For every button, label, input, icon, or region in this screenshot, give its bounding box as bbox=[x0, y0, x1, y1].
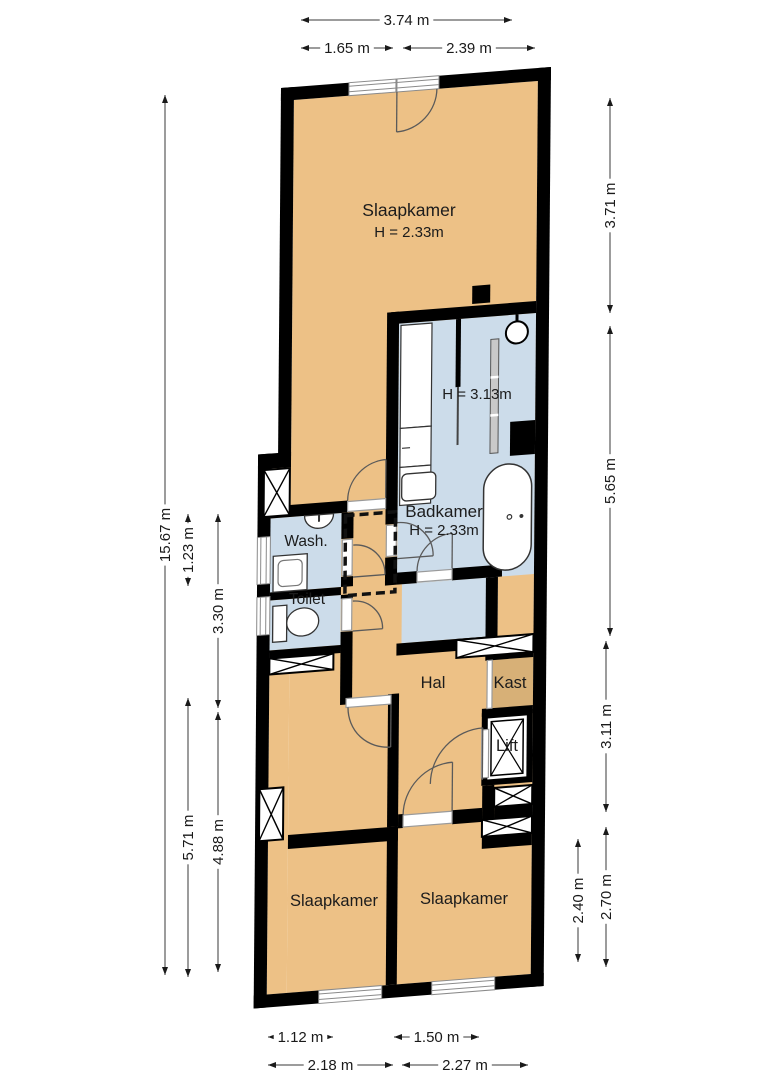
room-label-kast: Kast bbox=[493, 674, 526, 692]
dimension: 3.11 m bbox=[598, 641, 616, 812]
dimension: 1.23 m bbox=[180, 514, 198, 586]
dimension-label: 2.18 m bbox=[308, 1057, 354, 1074]
window-left-2 bbox=[257, 597, 270, 636]
dimension: 5.65 m bbox=[602, 326, 620, 636]
room-label-text: Badkamer bbox=[405, 502, 483, 521]
room-label-slaapkamer-right: Slaapkamer bbox=[420, 890, 509, 908]
shaft-box bbox=[264, 468, 290, 517]
room-height-label: H = 2.33m bbox=[409, 522, 479, 539]
dimension: 2.39 m bbox=[403, 40, 535, 58]
dimension: 3.71 m bbox=[602, 98, 620, 313]
dimension-label: 2.27 m bbox=[442, 1057, 488, 1074]
dimension-label: 2.70 m bbox=[598, 874, 615, 920]
room-label-hal: Hal bbox=[421, 674, 446, 692]
room-label-text: Slaapkamer bbox=[420, 890, 509, 908]
room-height-label: H = 2.33m bbox=[374, 224, 444, 241]
room-label-text: Slaapkamer bbox=[362, 200, 456, 220]
chimney-block bbox=[472, 285, 490, 304]
dimension: 5.71 m bbox=[180, 698, 198, 977]
room-label-text: Hal bbox=[421, 674, 446, 692]
room-label-text: Toilet bbox=[289, 591, 326, 608]
room-label-toilet: Toilet bbox=[289, 591, 326, 608]
room-badkamer-sub-fill bbox=[401, 577, 497, 643]
dimension: 2.18 m bbox=[268, 1057, 393, 1075]
dimension: 2.40 m bbox=[570, 839, 588, 962]
kast-door bbox=[487, 660, 492, 708]
room-label-slaapkamer-left: Slaapkamer bbox=[290, 892, 379, 910]
room-label-text: Slaapkamer bbox=[290, 892, 379, 910]
dimension-label: 5.71 m bbox=[180, 815, 197, 861]
door-threshold bbox=[348, 499, 386, 512]
floorplan-canvas: SlaapkamerH = 2.33mBadkamerH = 2.33mH = … bbox=[0, 0, 768, 1086]
dimension-label: 3.71 m bbox=[602, 183, 619, 229]
dimension: 1.50 m bbox=[394, 1029, 479, 1047]
shaft-box bbox=[494, 785, 532, 807]
room-label-lift: Lift bbox=[496, 737, 518, 755]
bathroom-sink bbox=[402, 472, 436, 502]
room-label-badkamer-shower-height: H = 3.13m bbox=[442, 386, 512, 403]
room-label-text: H = 3.13m bbox=[442, 386, 512, 403]
dimension-label: 1.65 m bbox=[324, 40, 370, 57]
dimension-label: 1.12 m bbox=[278, 1029, 324, 1046]
window-left-1 bbox=[257, 537, 270, 585]
dimension: 3.30 m bbox=[210, 514, 228, 708]
dimension-label: 2.39 m bbox=[446, 40, 492, 57]
dimension-label: 15.67 m bbox=[157, 508, 174, 562]
room-label-wash: Wash. bbox=[284, 533, 327, 550]
dimension: 15.67 m bbox=[157, 95, 175, 975]
dimension-label: 3.11 m bbox=[598, 704, 615, 749]
wall-notch bbox=[510, 420, 535, 456]
door-threshold bbox=[417, 569, 452, 582]
door-threshold bbox=[342, 598, 352, 631]
bathtub bbox=[483, 462, 532, 572]
dimension-label: 3.74 m bbox=[384, 12, 430, 29]
floorplan-page: SlaapkamerH = 2.33mBadkamerH = 2.33mH = … bbox=[0, 0, 768, 1086]
dimension: 1.65 m bbox=[301, 40, 393, 58]
shaft-box bbox=[482, 816, 532, 837]
room-label-text: Lift bbox=[496, 737, 518, 755]
dimension: 2.27 m bbox=[402, 1057, 528, 1075]
room-label-text: Kast bbox=[493, 674, 526, 692]
shaft-box bbox=[259, 787, 283, 841]
dimension-label: 1.23 m bbox=[180, 527, 197, 573]
dimension: 3.74 m bbox=[301, 12, 512, 30]
room-label-text: Wash. bbox=[284, 533, 327, 550]
dimension-label: 2.40 m bbox=[570, 878, 587, 924]
dimension-label: 4.88 m bbox=[210, 819, 227, 865]
dimension: 4.88 m bbox=[210, 712, 228, 972]
dimension-label: 3.30 m bbox=[210, 588, 227, 634]
dimension-label: 5.65 m bbox=[602, 458, 619, 504]
dimension: 2.70 m bbox=[598, 827, 616, 967]
washing-machine bbox=[273, 554, 307, 593]
room-label-badkamer: BadkamerH = 2.33m bbox=[405, 502, 483, 539]
dimension: 1.12 m bbox=[268, 1029, 333, 1047]
dimension-label: 1.50 m bbox=[414, 1029, 460, 1046]
